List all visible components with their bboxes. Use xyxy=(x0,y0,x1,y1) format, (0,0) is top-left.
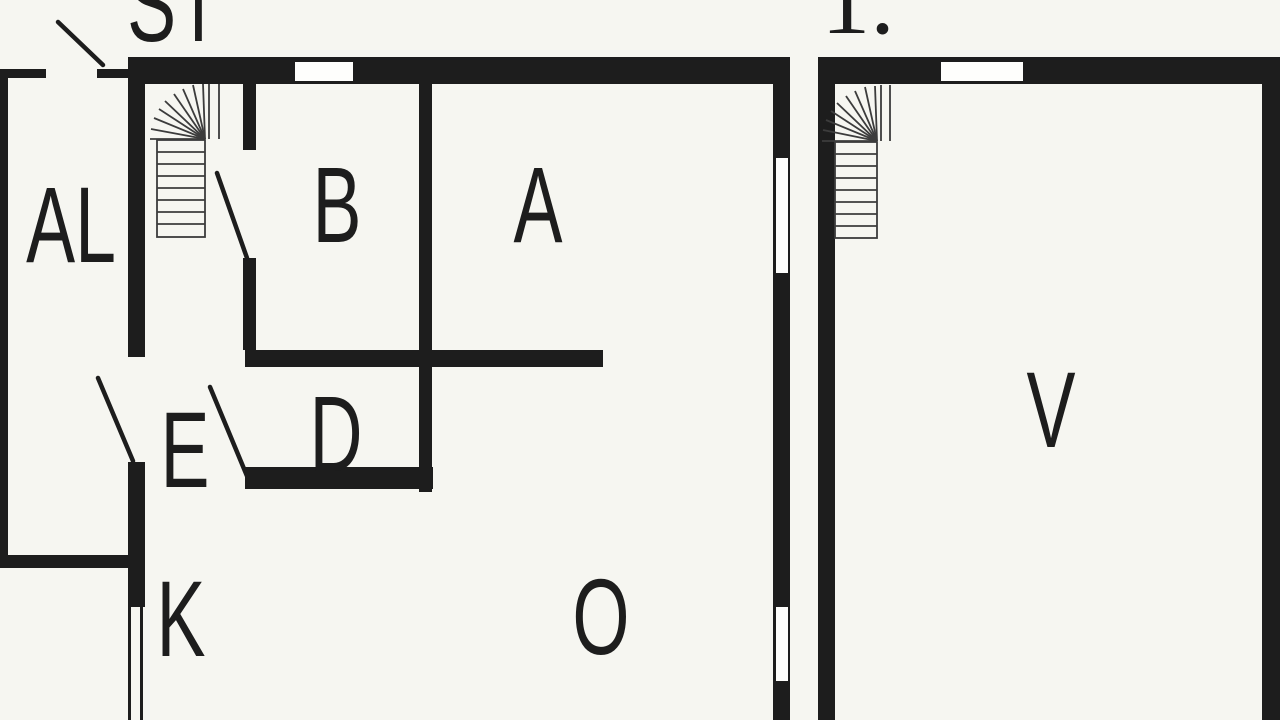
b-left-wall-lower xyxy=(243,258,256,350)
room-label-b: B xyxy=(313,151,362,259)
room-label-al: AL xyxy=(26,171,116,279)
al-bottom-wall xyxy=(0,555,128,568)
b-left-wall-upper xyxy=(243,84,256,150)
room-label-e: E xyxy=(161,396,210,504)
main-left-wall-upper xyxy=(128,57,145,357)
window-opening xyxy=(776,158,788,273)
room-label-k: K xyxy=(157,565,206,673)
room-label-d: D xyxy=(309,380,362,488)
room-label-o: O xyxy=(572,563,629,671)
al-top-wall-left-segment xyxy=(0,69,46,78)
window-opening xyxy=(295,62,353,81)
room-label-a: A xyxy=(514,151,563,259)
floor-number-label: 1. xyxy=(821,0,895,50)
window-opening xyxy=(941,62,1023,81)
floor-plan-canvas: ST 1. AL B A D E K O V xyxy=(0,0,1280,720)
room-label-v: V xyxy=(1027,356,1076,464)
window-opening xyxy=(776,607,788,681)
k-window-outer-line xyxy=(128,607,131,720)
k-window-inner-line xyxy=(140,607,143,720)
right-building-right-wall xyxy=(1262,57,1280,720)
b-a-divider-wall xyxy=(419,84,432,492)
stair-title-label: ST xyxy=(127,0,221,58)
mid-horizontal-wall xyxy=(245,350,603,367)
main-left-wall-lower xyxy=(128,462,145,607)
right-building-left-wall xyxy=(818,57,835,720)
al-left-wall xyxy=(0,69,8,568)
main-top-wall xyxy=(128,57,790,84)
right-building-top-wall xyxy=(818,57,1280,84)
al-top-wall-right-segment xyxy=(97,69,128,78)
